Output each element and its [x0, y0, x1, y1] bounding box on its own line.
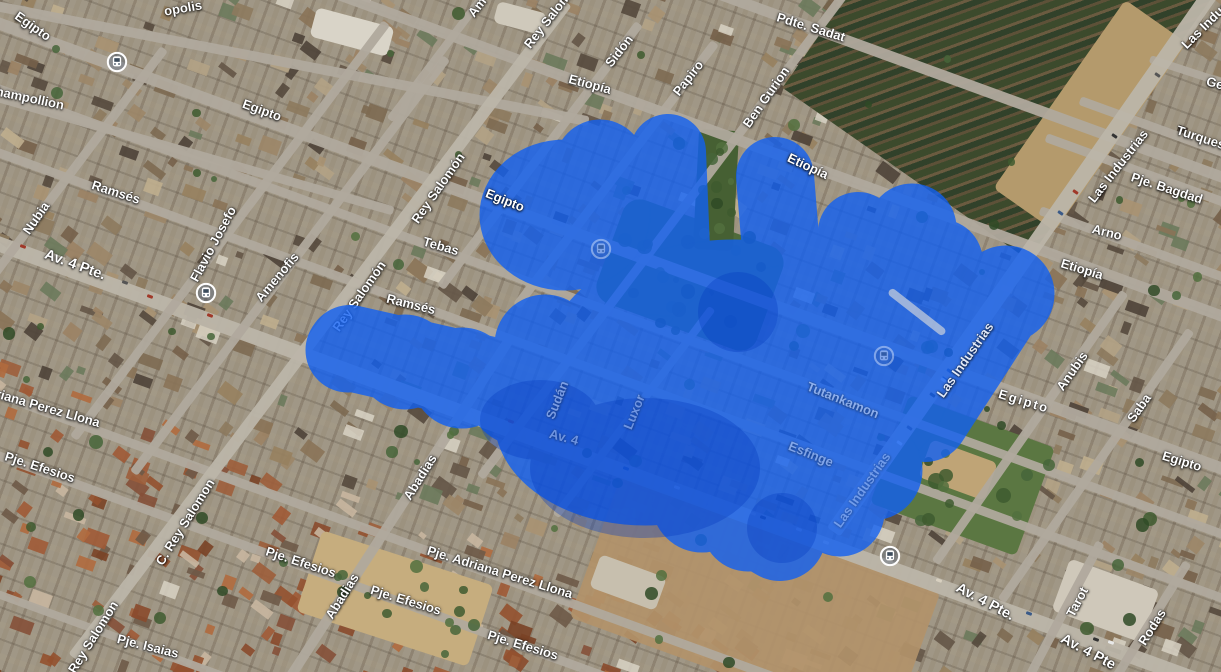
- transit-station-icon[interactable]: [195, 282, 217, 304]
- transit-station-icon[interactable]: [873, 345, 895, 367]
- satellite-map[interactable]: EgiptoopolishampollionEgiptoRey SalomónS…: [0, 0, 1221, 672]
- transit-station-icon[interactable]: [106, 51, 128, 73]
- map-imagery[interactable]: EgiptoopolishampollionEgiptoRey SalomónS…: [0, 0, 1221, 672]
- transit-station-icon[interactable]: [590, 238, 612, 260]
- transit-station-icon[interactable]: [879, 545, 901, 567]
